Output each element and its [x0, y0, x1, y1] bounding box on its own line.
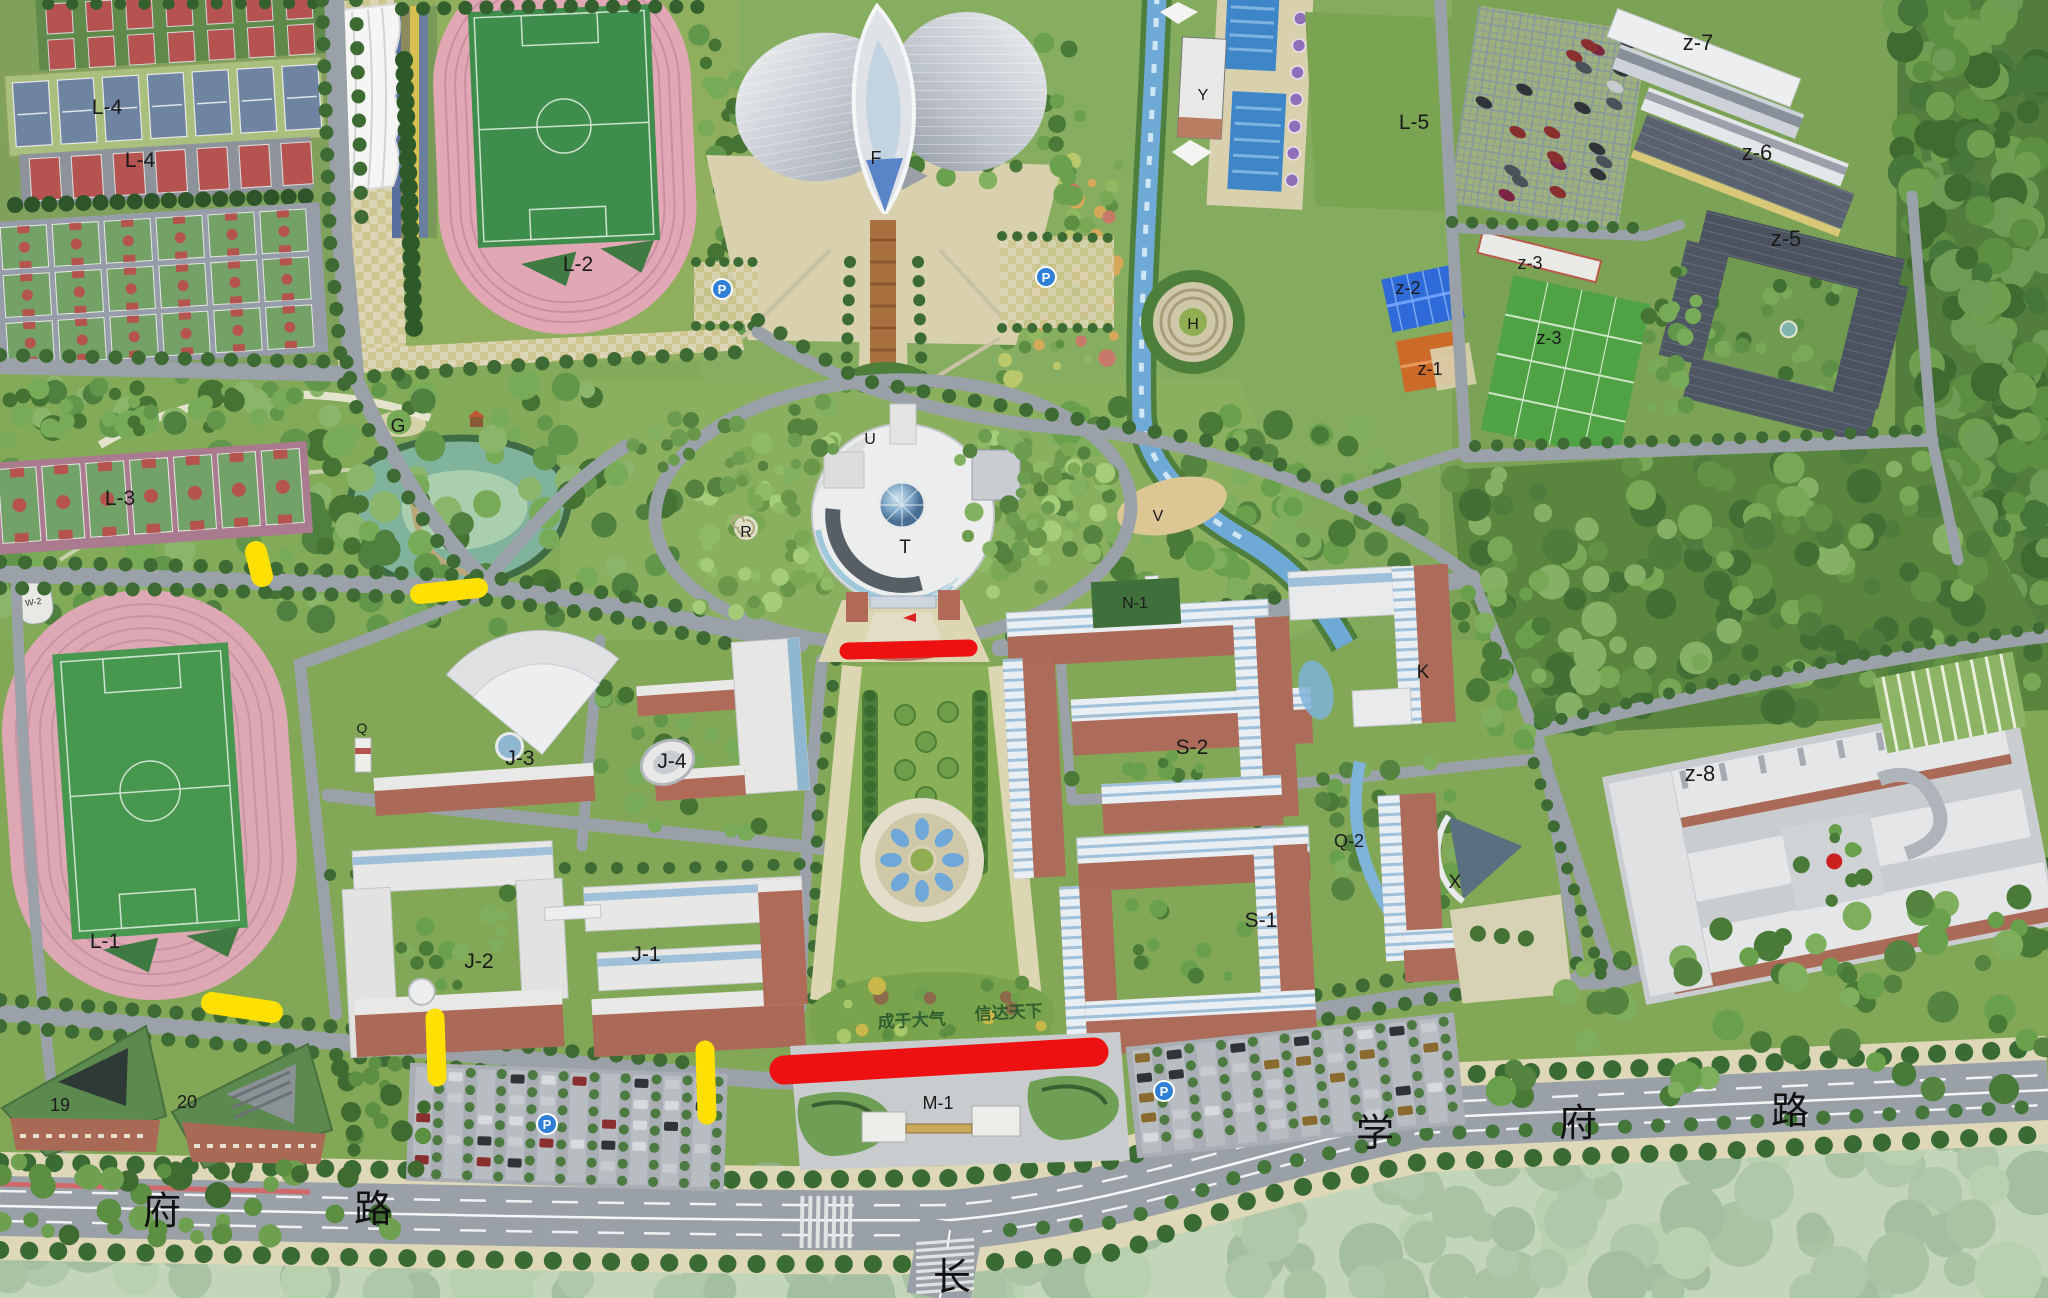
- svg-text:路: 路: [1771, 1091, 1809, 1133]
- svg-text:z-1: z-1: [1417, 359, 1442, 379]
- svg-text:z-2: z-2: [1395, 278, 1420, 298]
- svg-text:S-1: S-1: [1245, 909, 1278, 932]
- svg-text:G: G: [391, 416, 406, 437]
- svg-text:L-5: L-5: [1399, 111, 1429, 134]
- svg-text:H: H: [1187, 316, 1199, 333]
- svg-text:P: P: [543, 1117, 552, 1132]
- svg-text:z-5: z-5: [1771, 226, 1802, 251]
- svg-text:X: X: [1449, 872, 1462, 893]
- svg-text:府: 府: [1559, 1103, 1597, 1145]
- svg-text:L-4: L-4: [92, 96, 123, 119]
- svg-text:M-1: M-1: [923, 1093, 954, 1113]
- svg-text:L-1: L-1: [90, 930, 120, 953]
- svg-text:19: 19: [50, 1095, 70, 1115]
- svg-text:信达天下: 信达天下: [974, 1000, 1043, 1024]
- svg-text:J-1: J-1: [631, 943, 660, 966]
- svg-text:长: 长: [933, 1257, 971, 1298]
- svg-text:P: P: [1160, 1084, 1169, 1099]
- svg-text:P: P: [718, 282, 727, 297]
- svg-text:20: 20: [177, 1092, 197, 1112]
- svg-text:J-4: J-4: [657, 750, 686, 773]
- svg-text:z-3: z-3: [1517, 253, 1542, 273]
- svg-text:U: U: [864, 431, 876, 448]
- svg-text:z-7: z-7: [1683, 30, 1714, 55]
- svg-text:R: R: [740, 524, 752, 541]
- svg-text:路: 路: [354, 1189, 392, 1231]
- svg-text:J-2: J-2: [464, 950, 493, 973]
- svg-text:成于大气: 成于大气: [877, 1008, 946, 1032]
- svg-text:V: V: [1153, 508, 1164, 525]
- svg-text:P: P: [1042, 270, 1051, 285]
- svg-text:L-3: L-3: [105, 487, 135, 510]
- svg-text:K: K: [1417, 662, 1430, 683]
- svg-text:学: 学: [1356, 1113, 1394, 1155]
- svg-text:z-3: z-3: [1536, 328, 1561, 348]
- svg-text:T: T: [899, 537, 911, 558]
- svg-text:Q-2: Q-2: [1334, 831, 1364, 851]
- svg-text:L-4: L-4: [125, 149, 156, 172]
- svg-text:N-1: N-1: [1122, 595, 1148, 612]
- svg-text:F: F: [871, 148, 882, 168]
- svg-text:z-6: z-6: [1742, 140, 1773, 165]
- svg-text:z-8: z-8: [1685, 761, 1716, 786]
- svg-text:Y: Y: [1198, 87, 1209, 104]
- svg-text:府: 府: [143, 1191, 181, 1233]
- svg-text:Q: Q: [357, 720, 368, 736]
- svg-text:J-3: J-3: [505, 747, 534, 770]
- svg-text:S-2: S-2: [1176, 736, 1209, 759]
- svg-text:L-2: L-2: [563, 253, 593, 276]
